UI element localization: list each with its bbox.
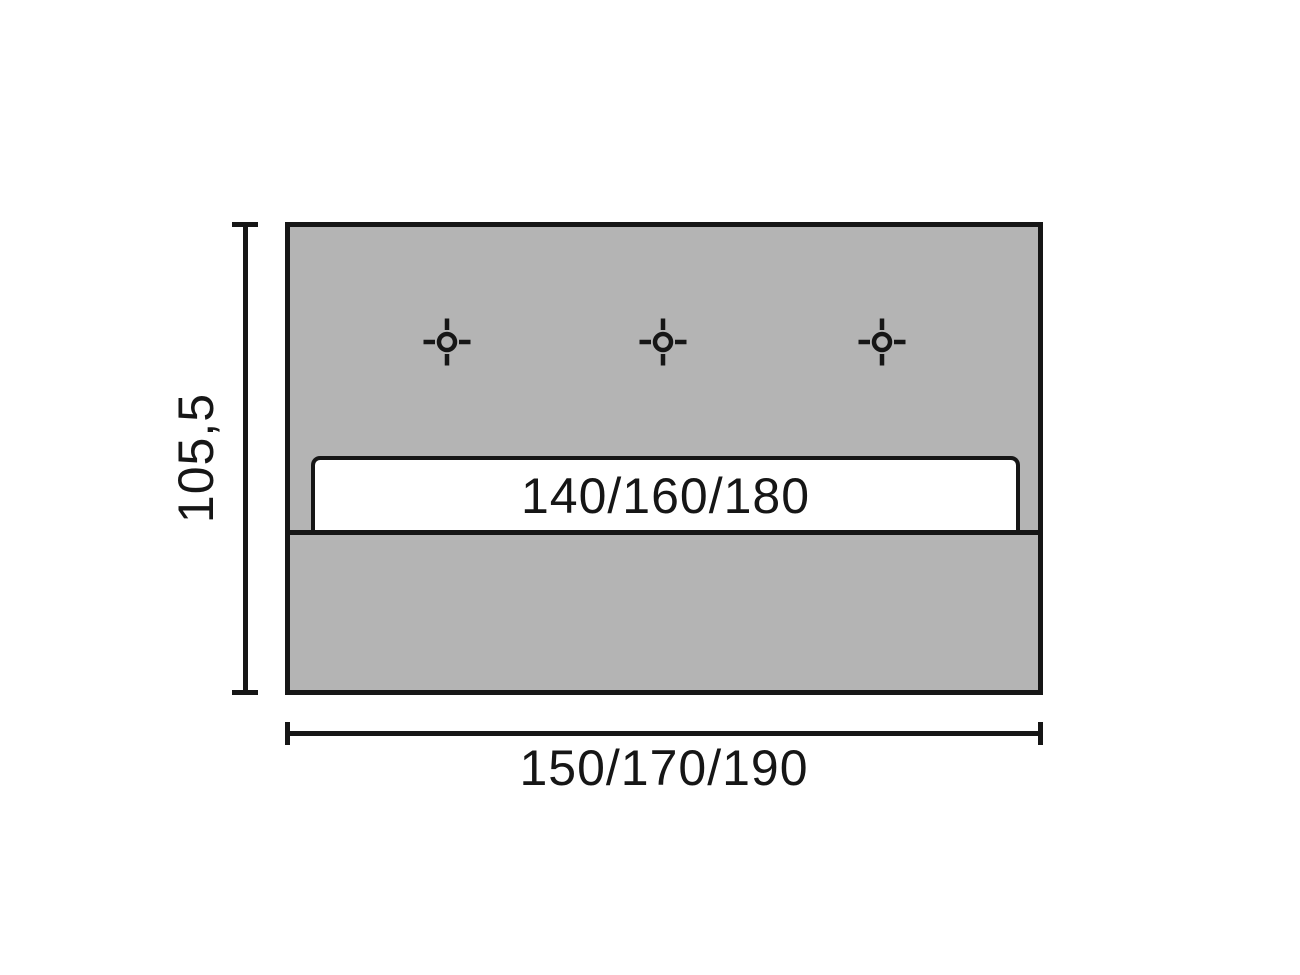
drawing-canvas: 105,5 140/160/180 (0, 0, 1300, 975)
panel-divider-line (290, 530, 1038, 535)
vertical-dimension-line (243, 222, 248, 695)
horizontal-dimension-label: 150/170/190 (519, 739, 808, 797)
vertical-dimension-cap-bottom (232, 690, 258, 695)
crosshair-mount-point-icon (858, 318, 906, 366)
crosshair-mount-point-icon (639, 318, 687, 366)
slat-widths-label: 140/160/180 (521, 465, 810, 525)
horizontal-dimension-line (285, 731, 1043, 736)
vertical-dimension-label: 105,5 (167, 393, 225, 523)
slat-bar: 140/160/180 (311, 456, 1020, 530)
horizontal-dimension-cap-right (1038, 722, 1043, 745)
crosshair-mount-point-icon (423, 318, 471, 366)
